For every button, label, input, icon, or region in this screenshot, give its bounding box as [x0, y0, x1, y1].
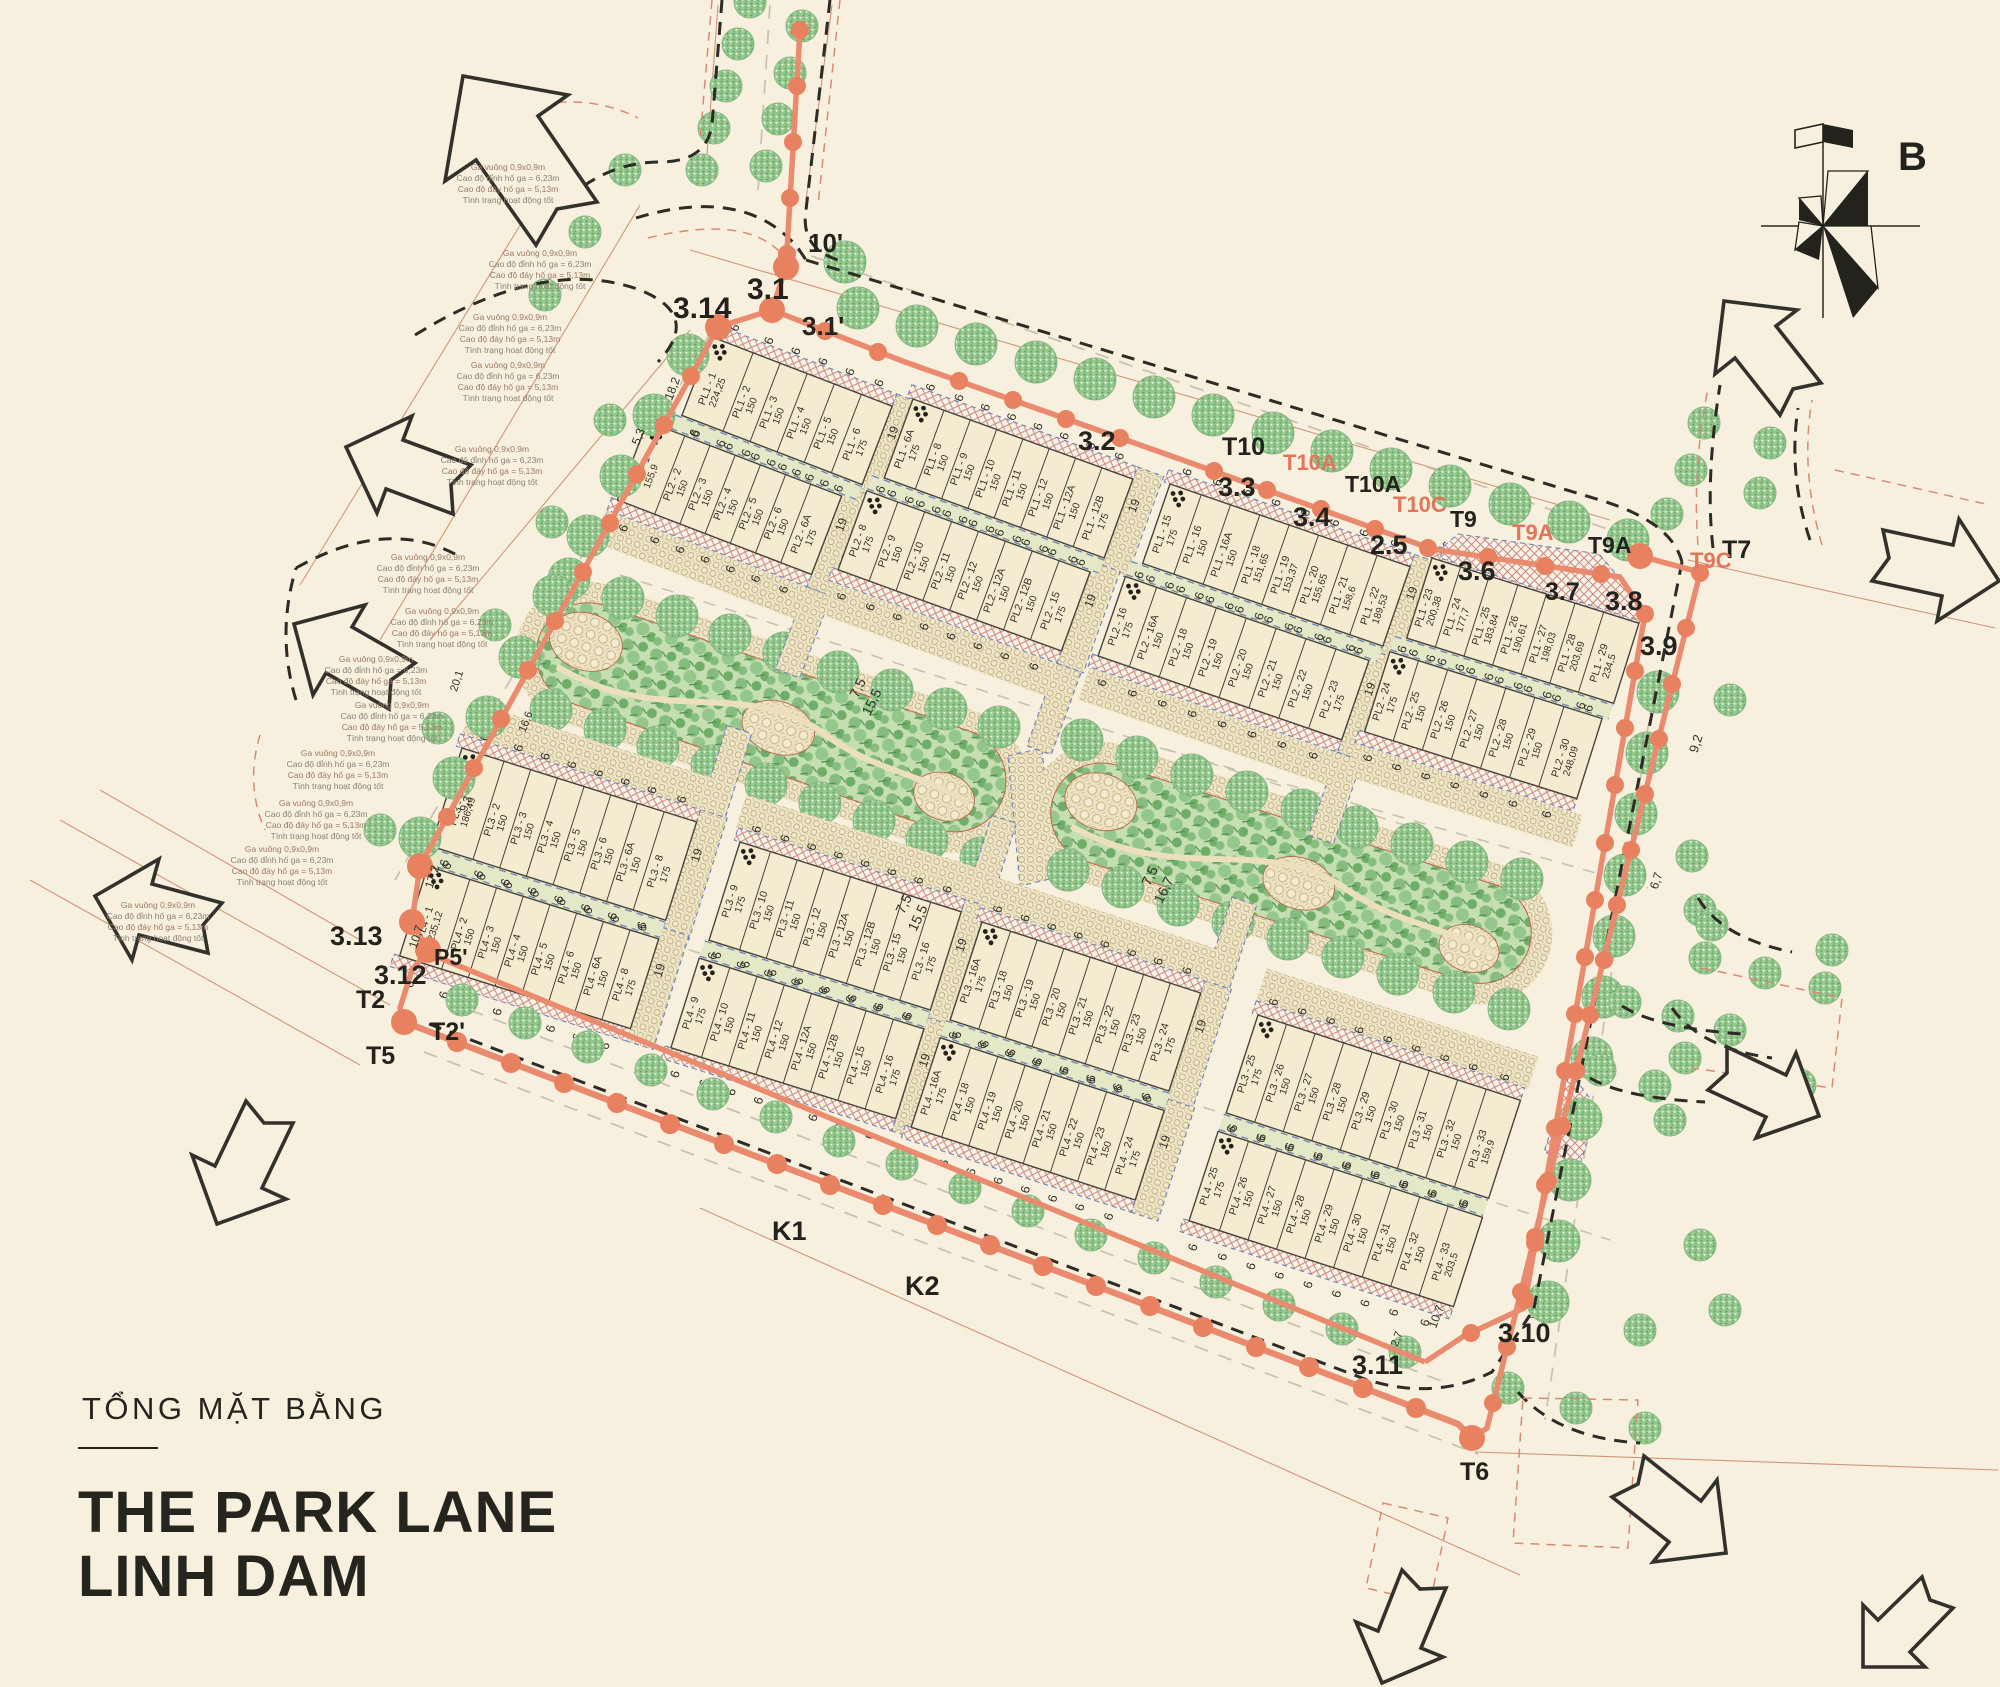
svg-text:Cao độ đáy hố ga = 5,13m: Cao độ đáy hố ga = 5,13m [378, 574, 478, 584]
svg-text:Cao độ đáy hố ga = 5,13m: Cao độ đáy hố ga = 5,13m [108, 922, 208, 932]
svg-text:3.4: 3.4 [1293, 502, 1331, 532]
svg-text:3.9: 3.9 [1640, 631, 1678, 661]
svg-text:Ga vuông 0,9x0,9m: Ga vuông 0,9x0,9m [355, 700, 429, 710]
svg-text:Tình trạng hoạt động tốt: Tình trạng hoạt động tốt [463, 195, 554, 205]
svg-text:Cao độ đáy hố ga = 5,13m: Cao độ đáy hố ga = 5,13m [458, 184, 558, 194]
svg-text:3.3: 3.3 [1218, 472, 1256, 502]
svg-text:Cao độ đỉnh hố ga = 6,23m: Cao độ đỉnh hố ga = 6,23m [489, 259, 592, 269]
svg-text:Cao độ đỉnh hố ga = 6,23m: Cao độ đỉnh hố ga = 6,23m [377, 563, 480, 573]
svg-text:K2: K2 [905, 1271, 940, 1301]
svg-text:Tình trạng hoạt động tốt: Tình trạng hoạt động tốt [463, 393, 554, 403]
svg-text:T2: T2 [356, 986, 385, 1014]
svg-text:Cao độ đáy hố ga = 5,13m: Cao độ đáy hố ga = 5,13m [232, 866, 332, 876]
svg-text:Cao độ đỉnh hố ga = 6,23m: Cao độ đỉnh hố ga = 6,23m [457, 371, 560, 381]
svg-text:Cao độ đáy hố ga = 5,13m: Cao độ đáy hố ga = 5,13m [266, 820, 366, 830]
svg-text:Cao độ đỉnh hố ga = 6,23m: Cao độ đỉnh hố ga = 6,23m [341, 711, 444, 721]
svg-text:Ga vuông 0,9x0,9m: Ga vuông 0,9x0,9m [471, 360, 545, 370]
svg-text:3.1: 3.1 [747, 273, 789, 306]
svg-text:Cao độ đỉnh hố ga = 6,23m: Cao độ đỉnh hố ga = 6,23m [459, 323, 562, 333]
svg-text:T9: T9 [1450, 506, 1477, 532]
svg-text:Cao độ đỉnh hố ga = 6,23m: Cao độ đỉnh hố ga = 6,23m [265, 809, 368, 819]
svg-text:3.8: 3.8 [1605, 586, 1643, 616]
svg-text:Tình trạng hoạt động tốt: Tình trạng hoạt động tốt [447, 477, 538, 487]
svg-text:LINH DAM: LINH DAM [78, 1544, 370, 1609]
svg-text:Ga vuông 0,9x0,9m: Ga vuông 0,9x0,9m [471, 162, 545, 172]
svg-text:Tình trạng hoạt động tốt: Tình trạng hoạt động tốt [383, 585, 474, 595]
svg-text:Cao độ đỉnh hố ga = 6,23m: Cao độ đỉnh hố ga = 6,23m [107, 911, 210, 921]
svg-text:Ga vuông 0,9x0,9m: Ga vuông 0,9x0,9m [339, 654, 413, 664]
svg-text:T10A: T10A [1283, 450, 1337, 475]
svg-text:Ga vuông 0,9x0,9m: Ga vuông 0,9x0,9m [391, 552, 465, 562]
svg-text:Ga vuông 0,9x0,9m: Ga vuông 0,9x0,9m [405, 606, 479, 616]
svg-text:Ga vuông 0,9x0,9m: Ga vuông 0,9x0,9m [279, 798, 353, 808]
svg-text:Cao độ đỉnh hố ga = 6,23m: Cao độ đỉnh hố ga = 6,23m [287, 759, 390, 769]
svg-text:THE PARK LANE: THE PARK LANE [78, 1480, 557, 1545]
svg-text:Tình trạng hoạt động tốt: Tình trạng hoạt động tốt [113, 933, 204, 943]
svg-text:Cao độ đỉnh hố ga = 6,23m: Cao độ đỉnh hố ga = 6,23m [457, 173, 560, 183]
svg-text:K1: K1 [772, 1216, 807, 1246]
svg-text:Ga vuông 0,9x0,9m: Ga vuông 0,9x0,9m [301, 748, 375, 758]
svg-text:3.6: 3.6 [1458, 556, 1496, 586]
svg-text:P5': P5' [434, 944, 468, 970]
svg-text:Ga vuông 0,9x0,9m: Ga vuông 0,9x0,9m [245, 844, 319, 854]
svg-text:Tình trạng hoạt động tốt: Tình trạng hoạt động tốt [331, 687, 422, 697]
svg-text:B: B [1898, 135, 1927, 179]
svg-text:TỔNG MẶT BẰNG: TỔNG MẶT BẰNG [82, 1390, 387, 1426]
svg-text:T10C: T10C [1393, 492, 1447, 517]
svg-text:Tình trạng hoạt động tốt: Tình trạng hoạt động tốt [347, 733, 438, 743]
svg-text:T5: T5 [366, 1042, 395, 1070]
svg-text:Cao độ đáy hố ga = 5,13m: Cao độ đáy hố ga = 5,13m [458, 382, 558, 392]
svg-text:3.7: 3.7 [1545, 578, 1580, 606]
svg-text:Tình trạng hoạt động tốt: Tình trạng hoạt động tốt [237, 877, 328, 887]
svg-text:Ga vuông 0,9x0,9m: Ga vuông 0,9x0,9m [503, 248, 577, 258]
svg-text:T9A: T9A [1588, 532, 1631, 558]
svg-text:Cao độ đáy hố ga = 5,13m: Cao độ đáy hố ga = 5,13m [392, 628, 492, 638]
svg-text:T2': T2' [430, 1018, 465, 1046]
svg-text:Ga vuông 0,9x0,9m: Ga vuông 0,9x0,9m [121, 900, 195, 910]
svg-text:Tình trạng hoạt động tốt: Tình trạng hoạt động tốt [271, 831, 362, 841]
svg-text:3.13: 3.13 [330, 921, 383, 951]
svg-text:3.14: 3.14 [673, 292, 732, 325]
svg-text:T9A: T9A [1512, 520, 1554, 545]
svg-text:Cao độ đỉnh hố ga = 6,23m: Cao độ đỉnh hố ga = 6,23m [231, 855, 334, 865]
svg-text:Ga vuông 0,9x0,9m: Ga vuông 0,9x0,9m [455, 444, 529, 454]
svg-text:T9C: T9C [1690, 548, 1732, 573]
svg-text:Ga vuông 0,9x0,9m: Ga vuông 0,9x0,9m [473, 312, 547, 322]
svg-text:Cao độ đáy hố ga = 5,13m: Cao độ đáy hố ga = 5,13m [342, 722, 442, 732]
svg-text:Tình trạng hoạt động tốt: Tình trạng hoạt động tốt [397, 639, 488, 649]
svg-text:10': 10' [808, 228, 843, 258]
svg-text:Cao độ đáy hố ga = 5,13m: Cao độ đáy hố ga = 5,13m [326, 676, 426, 686]
svg-text:T10: T10 [1222, 433, 1265, 461]
svg-text:Tình trạng hoạt động tốt: Tình trạng hoạt động tốt [495, 281, 586, 291]
svg-text:Tình trạng hoạt động tốt: Tình trạng hoạt động tốt [293, 781, 384, 791]
svg-text:2.5: 2.5 [1370, 530, 1408, 560]
svg-text:3.2: 3.2 [1078, 426, 1116, 456]
svg-text:3.10: 3.10 [1498, 1318, 1551, 1348]
svg-text:Cao độ đỉnh hố ga = 6,23m: Cao độ đỉnh hố ga = 6,23m [391, 617, 494, 627]
svg-text:Cao độ đáy hố ga = 5,13m: Cao độ đáy hố ga = 5,13m [442, 466, 542, 476]
svg-text:Cao độ đáy hố ga = 5,13m: Cao độ đáy hố ga = 5,13m [460, 334, 560, 344]
svg-text:Tình trạng hoạt động tốt: Tình trạng hoạt động tốt [465, 345, 556, 355]
svg-text:Cao độ đỉnh hố ga = 6,23m: Cao độ đỉnh hố ga = 6,23m [441, 455, 544, 465]
svg-text:Cao độ đáy hố ga = 5,13m: Cao độ đáy hố ga = 5,13m [288, 770, 388, 780]
svg-text:Cao độ đáy hố ga = 5,13m: Cao độ đáy hố ga = 5,13m [490, 270, 590, 280]
svg-text:3.11: 3.11 [1352, 1350, 1403, 1380]
svg-text:3.1': 3.1' [802, 311, 844, 341]
svg-text:T6: T6 [1460, 1458, 1489, 1486]
svg-text:Cao độ đỉnh hố ga = 6,23m: Cao độ đỉnh hố ga = 6,23m [325, 665, 428, 675]
